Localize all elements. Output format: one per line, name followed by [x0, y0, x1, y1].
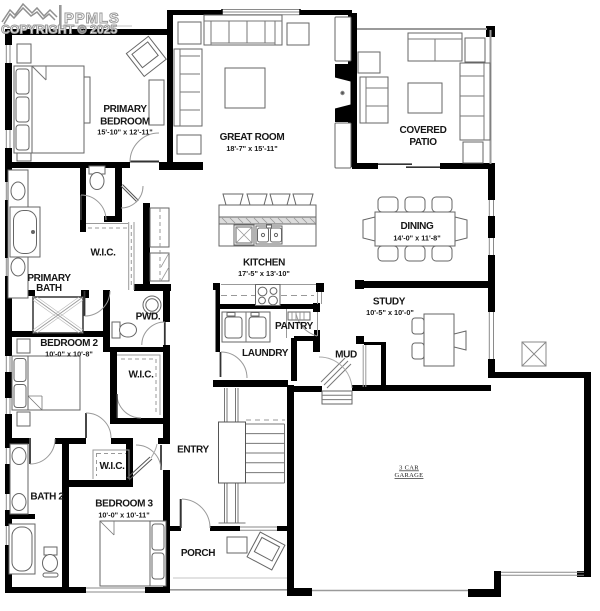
svg-text:W.I.C.: W.I.C. [99, 461, 125, 472]
svg-text:BEDROOM 2: BEDROOM 2 [40, 338, 98, 349]
svg-text:LAUNDRY: LAUNDRY [242, 348, 289, 359]
svg-text:15'-10" x 12'-11": 15'-10" x 12'-11" [97, 128, 152, 137]
svg-text:ENTRY: ENTRY [177, 445, 209, 456]
svg-text:10'-5" x 10'-0": 10'-5" x 10'-0" [366, 308, 414, 317]
svg-text:10'-0" x 10'-8": 10'-0" x 10'-8" [45, 350, 93, 359]
svg-text:PRIMARY: PRIMARY [103, 104, 147, 115]
svg-text:STUDY: STUDY [373, 297, 406, 308]
svg-text:DINING: DINING [401, 221, 434, 232]
svg-text:BATH 2: BATH 2 [30, 492, 64, 503]
svg-text:14'-0" x 11'-8": 14'-0" x 11'-8" [393, 234, 440, 243]
svg-text:PANTRY: PANTRY [275, 321, 314, 332]
svg-text:PORCH: PORCH [181, 548, 215, 559]
svg-text:W.I.C.: W.I.C. [90, 248, 116, 259]
svg-text:PWD.: PWD. [136, 312, 161, 323]
svg-text:GARAGE: GARAGE [395, 472, 424, 479]
svg-text:18'-7" x 15'-11": 18'-7" x 15'-11" [226, 144, 277, 153]
svg-text:BEDROOM 3: BEDROOM 3 [95, 499, 153, 510]
svg-text:COPYRIGHT © 2025: COPYRIGHT © 2025 [1, 23, 118, 37]
svg-text:3 CAR: 3 CAR [399, 465, 419, 472]
svg-text:MUD: MUD [335, 350, 357, 361]
svg-text:BEDROOM: BEDROOM [100, 117, 150, 128]
svg-text:COVERED: COVERED [399, 125, 446, 136]
svg-text:W.I.C.: W.I.C. [128, 370, 154, 381]
svg-text:GREAT ROOM: GREAT ROOM [220, 132, 285, 143]
svg-text:KITCHEN: KITCHEN [243, 258, 285, 269]
svg-text:PATIO: PATIO [409, 137, 437, 148]
svg-text:10'-0" x 10'-11": 10'-0" x 10'-11" [98, 511, 149, 520]
svg-text:BATH: BATH [36, 283, 62, 294]
svg-text:17'-5" x 13'-10": 17'-5" x 13'-10" [238, 269, 290, 278]
